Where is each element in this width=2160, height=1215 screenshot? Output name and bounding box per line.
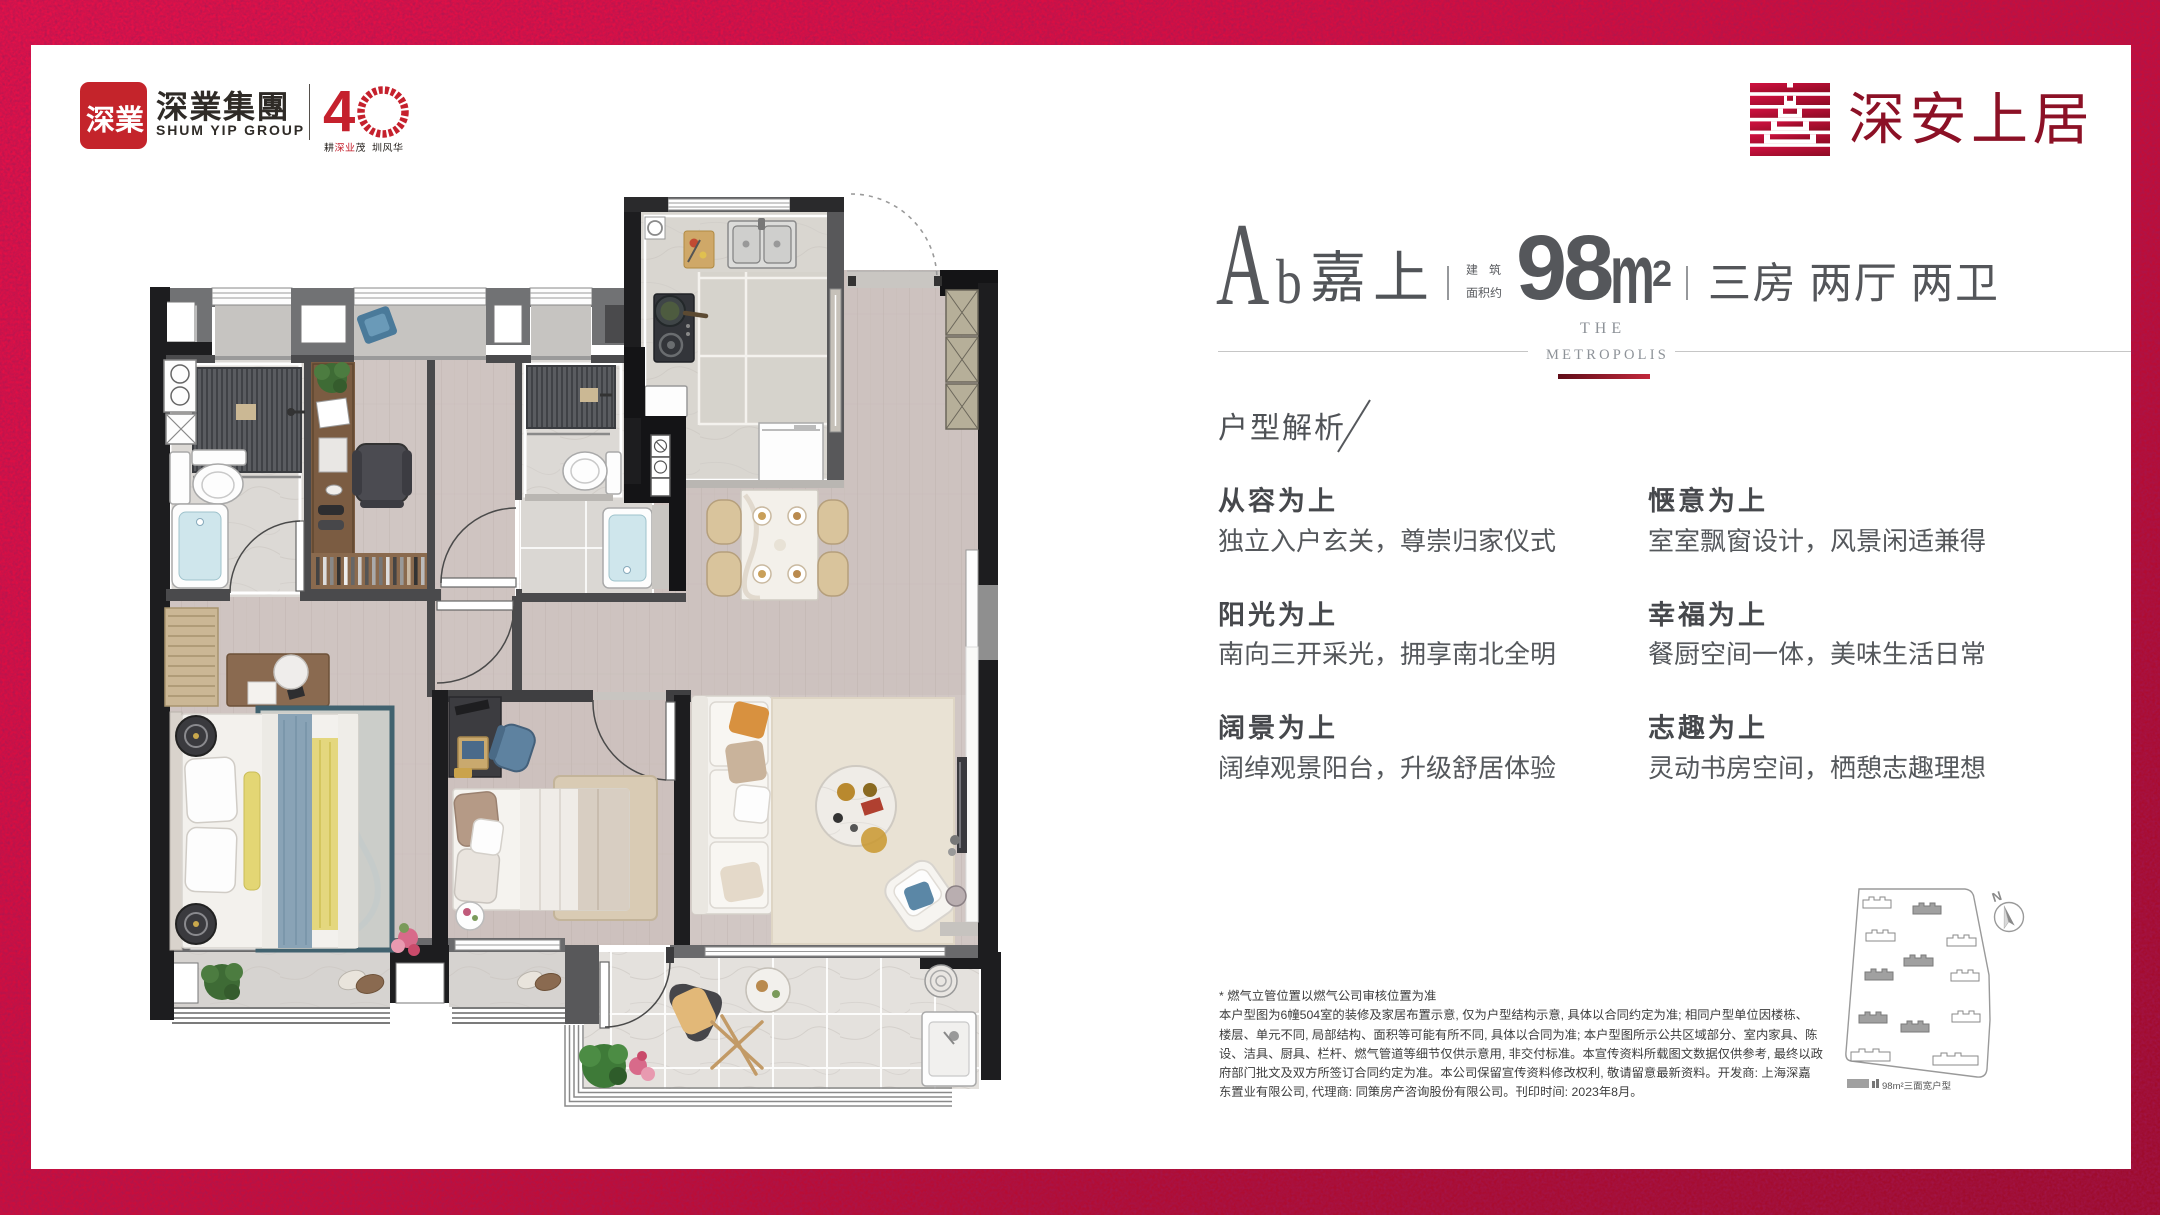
svg-text:98m²三面宽户型: 98m²三面宽户型 bbox=[1882, 1080, 1952, 1092]
svg-text:N: N bbox=[1990, 888, 2004, 905]
